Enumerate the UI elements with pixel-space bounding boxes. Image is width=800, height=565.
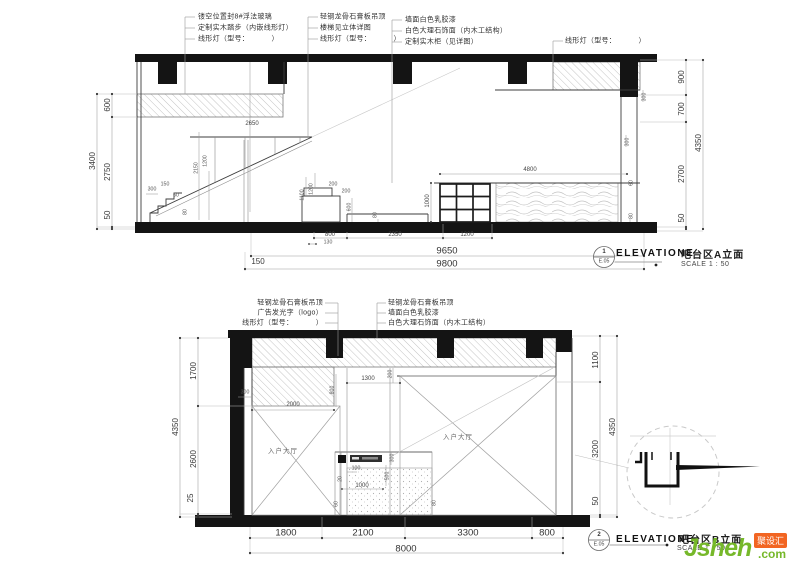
callout-b-number: 2 (597, 532, 600, 538)
channel-arm (676, 465, 760, 470)
dim-label: 1700 (190, 362, 198, 380)
dim-label: 2750 (104, 163, 112, 181)
dim-label: 2650 (245, 121, 258, 127)
note-label: 轻钢龙骨石膏板吊顶 (320, 14, 386, 21)
watermark-badge: 聚设汇 (754, 533, 787, 548)
watermark-brand: Jsheh (684, 534, 751, 563)
channel-hook (635, 452, 641, 462)
scale-text-a: SCALE 1 : 50 (681, 261, 729, 268)
note-label: 白色大理石饰面（内木工结构） (388, 320, 490, 327)
room-label: 入户大厅 (268, 449, 298, 456)
note-label: 线形灯（型号： ） (242, 320, 323, 327)
dim-label: 700 (678, 102, 686, 115)
note-label: 镂空位置封8#浮法玻璃 (198, 14, 272, 21)
callout-b-sheet: E.05 (594, 542, 605, 547)
dim-label: 300 (642, 93, 647, 102)
note-label: 楼梯见立体详图 (320, 25, 371, 32)
note-label: 线形灯（型号： ） (565, 38, 646, 45)
note-label: 轻钢龙骨石膏板吊顶 (257, 300, 323, 307)
dim-label: 150 (251, 258, 264, 266)
dim-label: 3400 (89, 152, 97, 170)
dim-label: 2100 (352, 528, 373, 538)
dim-label: 3200 (592, 440, 600, 458)
dim-label: 2700 (678, 165, 686, 183)
dim-label: 500 (385, 472, 390, 481)
dim-label: 1300 (361, 376, 374, 382)
dim-label: 1200 (460, 232, 473, 238)
elevation-a-ext-lines (97, 60, 703, 271)
note-label: 线形灯（型号： ） (198, 36, 279, 43)
dim-label: 2150 (194, 162, 199, 174)
note-label: 墙面白色乳胶漆 (388, 310, 439, 317)
note-label: 轻钢龙骨石膏板吊顶 (388, 300, 454, 307)
dim-label: 130 (324, 240, 333, 245)
wine-rack-grid (440, 184, 490, 222)
note-label: 广告发光字（logo） (257, 310, 323, 317)
dim-label: 50 (592, 497, 600, 506)
note-label: 定制实木柜（见详图） (405, 39, 478, 46)
room-label: 入户大厅 (443, 435, 473, 442)
dim-label: 1100 (300, 189, 305, 200)
dim-label: 4350 (695, 134, 703, 152)
dim-label: 300 (241, 390, 250, 395)
dim-label: 2000 (286, 402, 299, 408)
channel-profile (646, 452, 678, 486)
dim-label: 800 (325, 232, 335, 238)
reception-counter (335, 452, 432, 515)
dim-label: 50 (678, 214, 686, 223)
elevation-a-hatch (137, 62, 640, 222)
dim-label: 1800 (275, 528, 296, 538)
dim-label: 300 (625, 138, 630, 147)
dim-label: 600 (347, 203, 352, 212)
dim-label: 2600 (190, 450, 198, 468)
dim-label: 1200 (309, 183, 314, 195)
dim-label: 80 (373, 212, 378, 218)
dim-label: 50 (104, 211, 112, 220)
callout-a-number: 1 (602, 249, 605, 255)
dim-label: 9800 (436, 259, 457, 269)
dim-label: 9650 (436, 246, 457, 256)
dim-label: 60 (173, 193, 179, 198)
cad-elevation-sheet: 镂空位置封8#浮法玻璃 定制实木踏步（内嵌线形灯） 线形灯（型号： ） 轻钢龙骨… (0, 0, 800, 565)
watermark-tld: .com (758, 547, 786, 561)
callout-a-sheet: E.05 (599, 259, 610, 264)
dim-label: 1100 (592, 351, 600, 368)
dim-label: 300 (390, 454, 395, 463)
dim-label: 4350 (609, 418, 617, 436)
dim-label: 60 (629, 180, 634, 186)
dim-label: 25 (187, 494, 195, 503)
dim-label: 80 (183, 209, 188, 215)
dim-label: 200 (388, 370, 393, 379)
dim-label: 4350 (172, 418, 180, 436)
dim-label: 20 (338, 476, 343, 482)
note-label: 定制实木踏步（内嵌线形灯） (198, 25, 293, 32)
dim-label: 800 (330, 386, 335, 395)
note-label: 墙面白色乳胶漆 (405, 17, 456, 24)
dim-label: 2350 (388, 232, 401, 238)
dim-label: 1200 (203, 155, 208, 167)
drawing-title-a: 吧台区A立面 (681, 246, 744, 261)
watermark-logo: Jsheh .com 聚设汇 (682, 533, 800, 565)
dim-label: 300 (148, 187, 157, 192)
drawing-linework (0, 0, 800, 565)
dim-label: 8000 (395, 544, 416, 554)
dim-label: 900 (678, 70, 686, 83)
dim-label: 4800 (523, 167, 536, 173)
dim-label: 1000 (425, 194, 431, 207)
dim-label: 80 (629, 213, 634, 219)
detail-circle (627, 426, 760, 518)
dim-label: 3300 (457, 528, 478, 538)
dim-label: 600 (104, 98, 112, 111)
dim-label: 1000 (355, 483, 368, 489)
elevation-b-hatch (252, 338, 556, 406)
dim-label: 60 (334, 501, 339, 507)
dim-label: 200 (342, 189, 351, 194)
dim-label: 80 (432, 500, 437, 506)
dim-label: 200 (329, 182, 338, 187)
dim-label: 150 (161, 182, 170, 187)
dim-label: 100 (352, 466, 361, 471)
dim-label: 800 (539, 528, 555, 538)
logo-plate-icon (338, 455, 346, 463)
note-label: 白色大理石饰面（内木工结构） (405, 28, 507, 35)
elevation-a-dim-dots (96, 59, 704, 270)
note-label: 线形灯（型号： ） (320, 36, 401, 43)
